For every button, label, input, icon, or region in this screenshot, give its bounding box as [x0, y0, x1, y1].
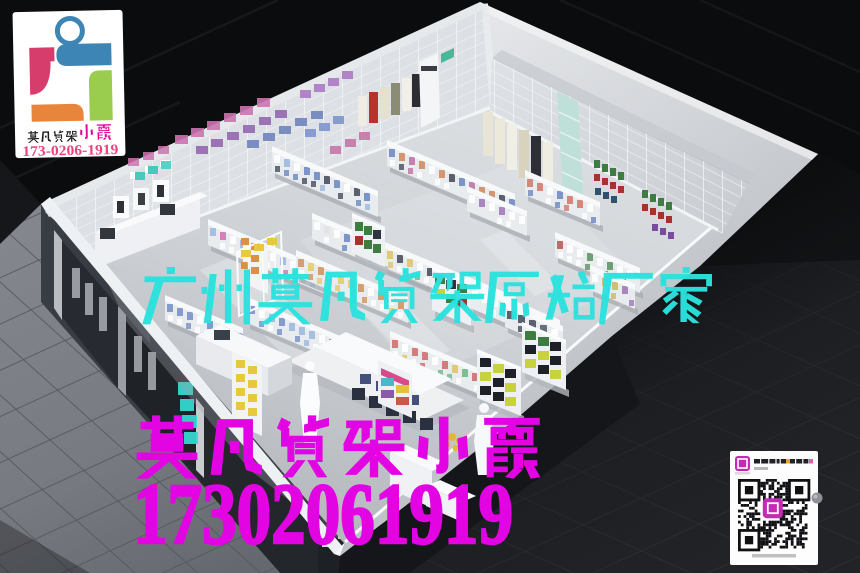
svg-text:17302061919: 17302061919	[133, 465, 513, 562]
svg-text:173-0206-1919: 173-0206-1919	[22, 142, 118, 160]
